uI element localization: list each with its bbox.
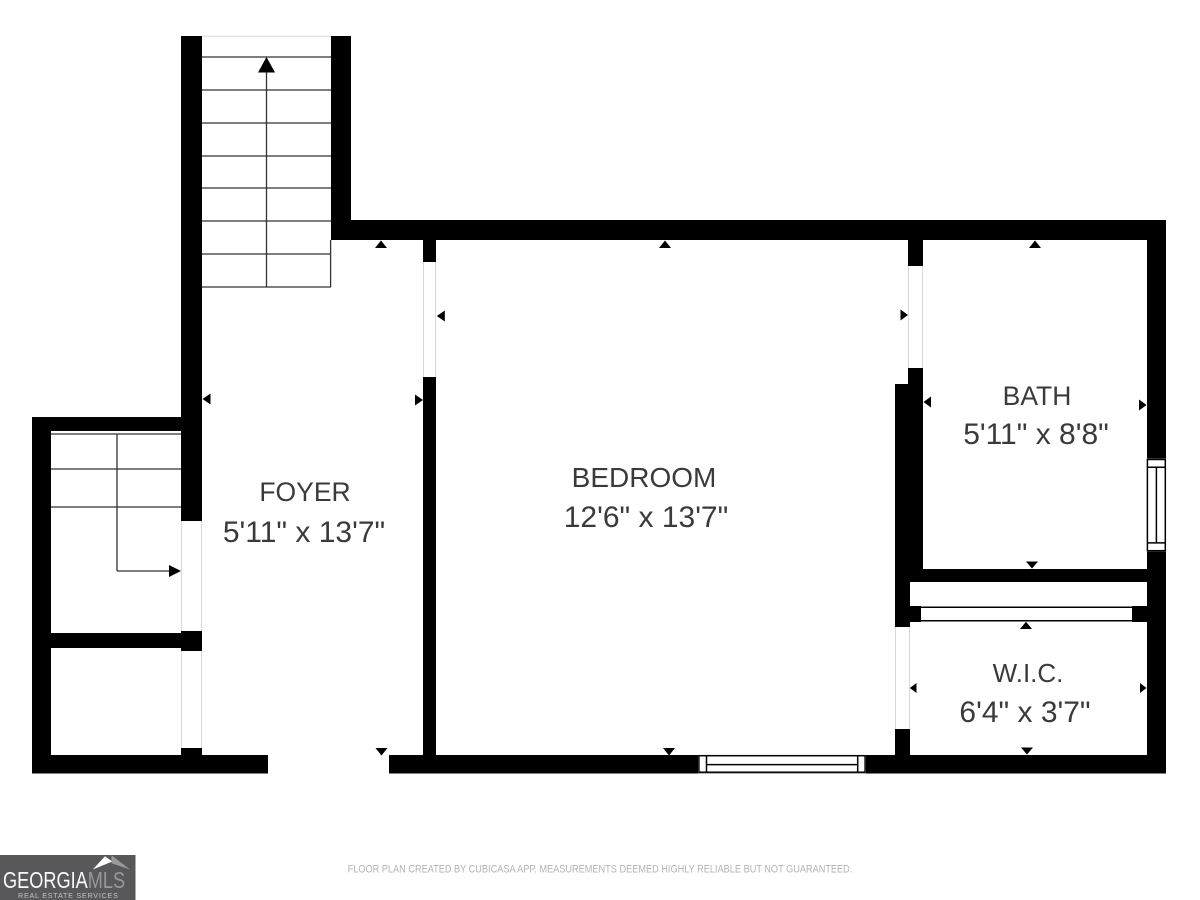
svg-text:FOYER: FOYER [259,477,350,507]
svg-text:BEDROOM: BEDROOM [572,462,717,493]
svg-text:12'6" x 13'7": 12'6" x 13'7" [564,501,729,534]
svg-text:GEORGIAMLS: GEORGIAMLS [3,868,125,894]
svg-text:REAL ESTATE SERVICES: REAL ESTATE SERVICES [18,891,119,900]
svg-text:5'11" x 13'7": 5'11" x 13'7" [223,516,385,549]
svg-text:BATH: BATH [1003,381,1072,411]
svg-text:5'11" x 8'8": 5'11" x 8'8" [963,418,1109,451]
svg-text:6'4" x 3'7": 6'4" x 3'7" [959,696,1090,729]
svg-text:W.I.C.: W.I.C. [993,658,1064,688]
svg-text:FLOOR PLAN CREATED BY CUBICASA: FLOOR PLAN CREATED BY CUBICASA APP. MEAS… [348,864,853,876]
